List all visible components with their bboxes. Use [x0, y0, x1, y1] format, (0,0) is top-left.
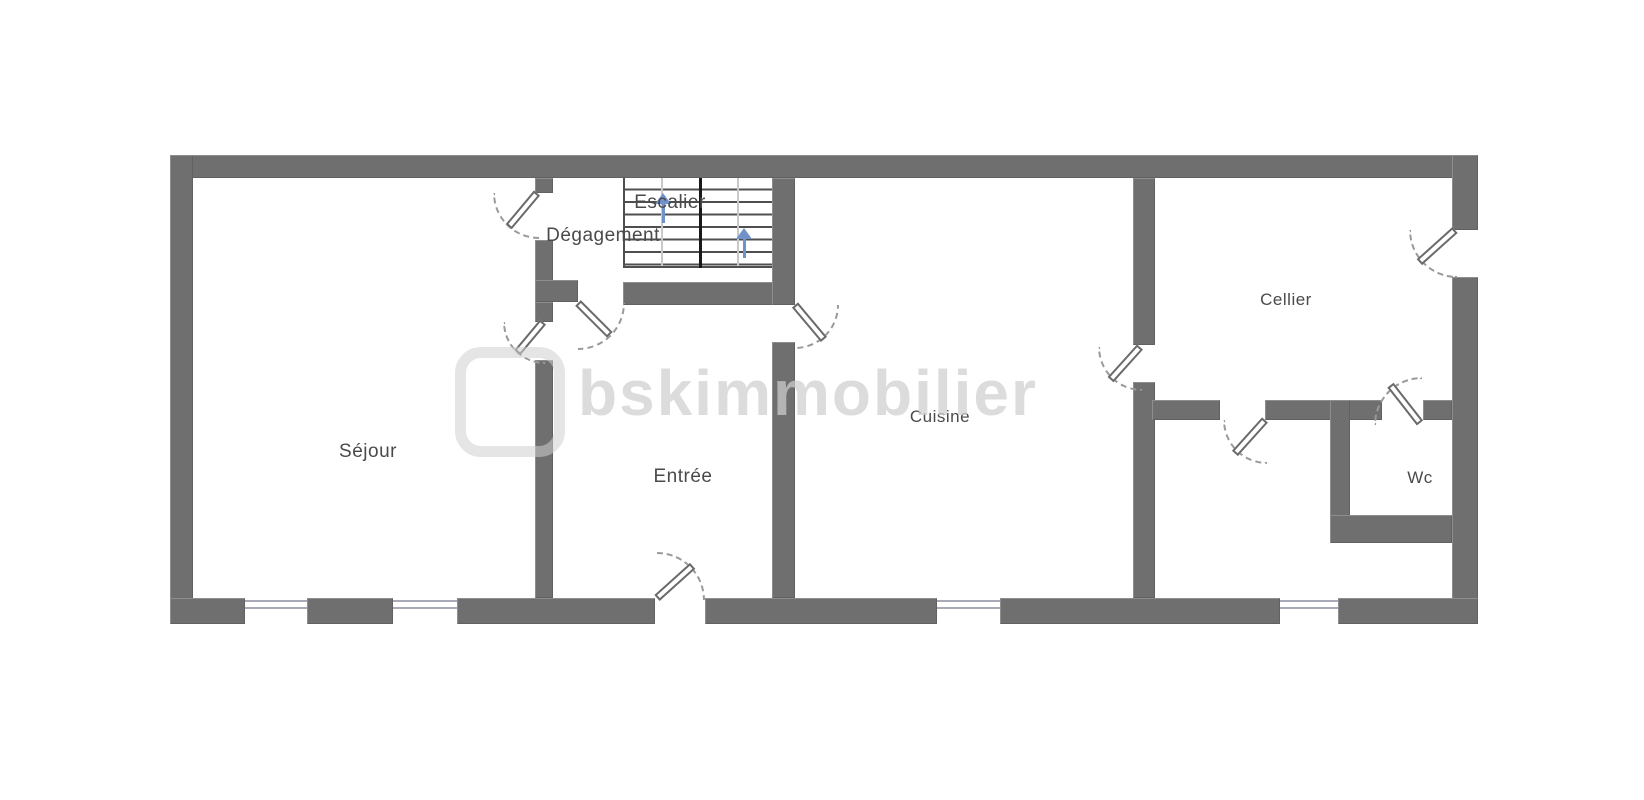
window — [1280, 598, 1338, 624]
room-label-escalier: Escalier — [634, 192, 706, 214]
wall-sejour-entree-lower — [535, 360, 553, 598]
outer-wall-bottom-seg — [457, 598, 655, 624]
wall-sejour-entree-upper — [535, 302, 553, 322]
outer-wall-bottom-seg — [1338, 598, 1478, 624]
stair-direction-arrow-icon — [736, 228, 752, 258]
room-label-cuisine: Cuisine — [910, 407, 970, 427]
wall-cellier-bottom-seg — [1423, 400, 1452, 420]
outer-wall-bottom-seg — [705, 598, 937, 624]
arrow-head-icon — [736, 228, 752, 239]
outer-wall-top — [170, 155, 1478, 178]
arrow-stem — [743, 239, 746, 258]
window — [245, 598, 307, 624]
wall-entree-cuisine-lower — [772, 342, 795, 598]
wall-cellier-bottom-seg — [1265, 400, 1382, 420]
wall-degagement-stub — [535, 280, 578, 302]
outer-wall-right-lower — [1452, 277, 1478, 624]
outer-wall-left — [170, 155, 193, 624]
room-label-entree: Entrée — [654, 466, 713, 488]
wall-entree-cuisine-upper — [772, 178, 795, 305]
room-label-wc: Wc — [1407, 468, 1433, 488]
window — [393, 598, 457, 624]
wall-cuisine-cellier-upper — [1133, 178, 1155, 345]
wall-cellier-bottom-seg — [1152, 400, 1220, 420]
floor-plan: Séjour Dégagement Escalier Entrée Cuisin… — [0, 0, 1644, 800]
room-label-degagement: Dégagement — [546, 225, 660, 247]
room-label-cellier: Cellier — [1260, 290, 1312, 310]
outer-wall-bottom-seg — [307, 598, 393, 624]
wall-stair-entree — [623, 282, 777, 305]
wall-wc-bottom — [1330, 515, 1452, 543]
window — [937, 598, 1000, 624]
outer-wall-bottom-seg — [1000, 598, 1280, 624]
outer-wall-right-upper — [1452, 155, 1478, 230]
wall-sejour-degagement-pillar — [535, 178, 553, 193]
outer-wall-bottom-seg — [170, 598, 245, 624]
room-label-sejour: Séjour — [339, 441, 397, 463]
